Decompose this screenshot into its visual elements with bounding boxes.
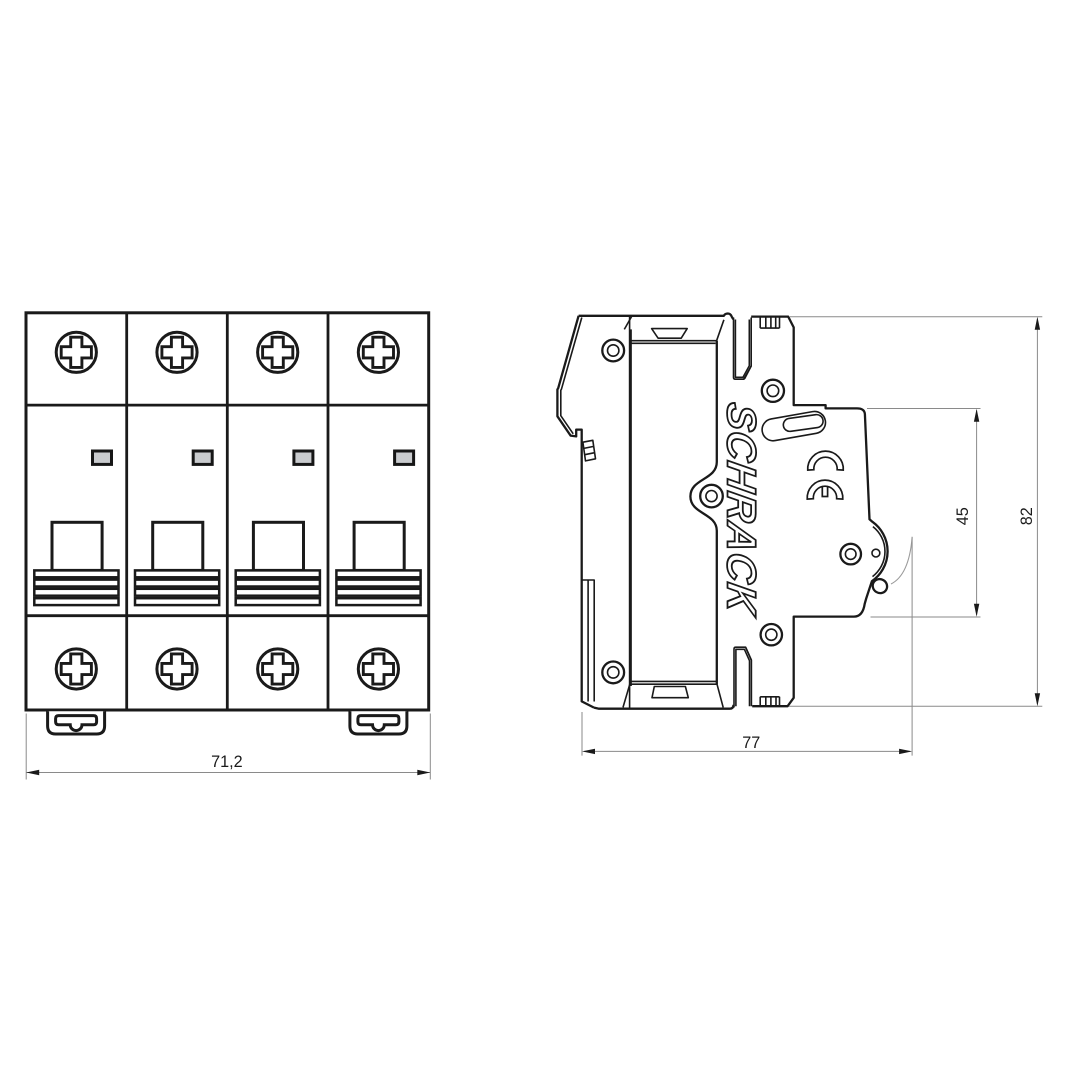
svg-text:71,2: 71,2 [211,753,243,771]
svg-text:45: 45 [954,507,972,525]
svg-text:82: 82 [1018,507,1036,525]
svg-text:77: 77 [742,734,760,752]
svg-text:SCHRACK: SCHRACK [719,400,765,620]
